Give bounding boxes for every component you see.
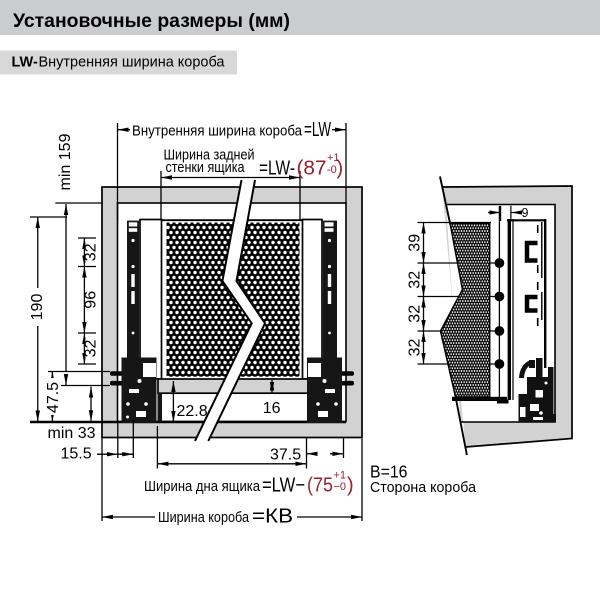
svg-text:15.5: 15.5 xyxy=(61,446,92,463)
svg-text:47.5: 47.5 xyxy=(45,382,62,413)
svg-text:): ) xyxy=(347,475,354,497)
svg-text:Внутренняя ширина короба: Внутренняя ширина короба xyxy=(39,55,226,71)
svg-text:min 33: min 33 xyxy=(48,425,96,442)
svg-text:Установочные размеры (мм): Установочные размеры (мм) xyxy=(13,10,290,32)
svg-text:39: 39 xyxy=(407,234,424,252)
svg-text:Сторона короба: Сторона короба xyxy=(370,479,477,496)
svg-text:(87: (87 xyxy=(297,158,327,180)
svg-text:=LW: =LW xyxy=(304,119,331,141)
svg-text:16: 16 xyxy=(263,400,281,417)
svg-text:37.5: 37.5 xyxy=(270,447,301,464)
svg-text:190: 190 xyxy=(29,294,46,321)
svg-text:9: 9 xyxy=(522,206,529,220)
svg-text:96: 96 xyxy=(83,291,100,309)
svg-text:Ширина короба: Ширина короба xyxy=(158,509,250,526)
svg-text:32: 32 xyxy=(407,339,424,357)
svg-text:=LW-: =LW- xyxy=(259,158,295,180)
svg-text:32: 32 xyxy=(83,243,100,261)
svg-text:32: 32 xyxy=(407,271,424,289)
svg-text:32: 32 xyxy=(83,340,100,358)
svg-text:стенки ящика: стенки ящика xyxy=(166,159,246,176)
svg-text:-0: -0 xyxy=(327,164,337,176)
svg-text:22.8: 22.8 xyxy=(177,403,208,420)
svg-text:min 159: min 159 xyxy=(57,133,74,190)
svg-text:−0: −0 xyxy=(334,481,347,493)
svg-text:Внутренняя ширина короба: Внутренняя ширина короба xyxy=(132,123,303,140)
svg-text:LW-: LW- xyxy=(12,55,38,71)
svg-text:+1: +1 xyxy=(334,470,347,482)
svg-text:=LW−: =LW− xyxy=(262,475,305,497)
svg-text:=КВ: =КВ xyxy=(252,506,293,528)
svg-text:Ширина дна ящика: Ширина дна ящика xyxy=(144,478,261,495)
svg-text:32: 32 xyxy=(407,305,424,323)
svg-text:(75: (75 xyxy=(307,475,333,497)
svg-text:): ) xyxy=(337,158,344,180)
